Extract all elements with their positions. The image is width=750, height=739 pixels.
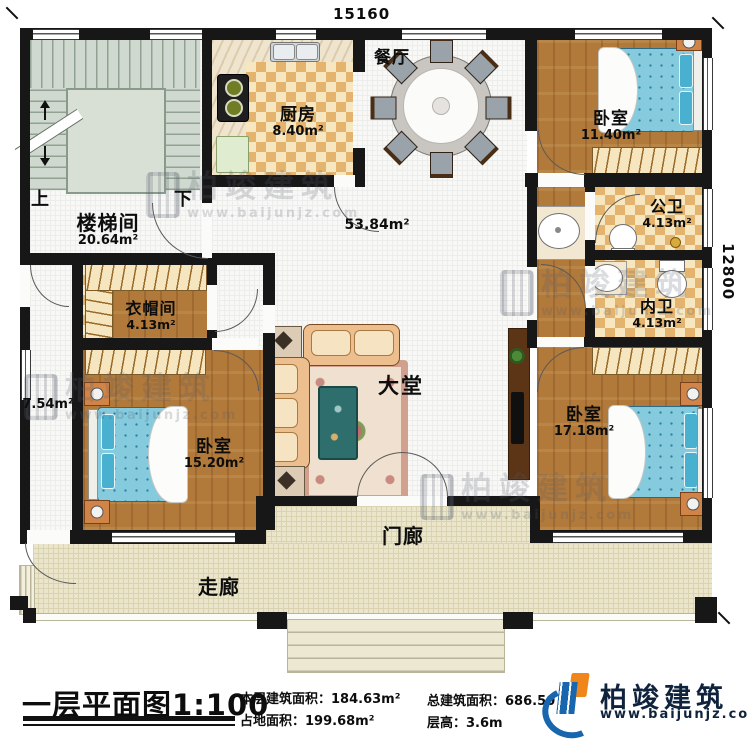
- door-gap-side-entry: [20, 265, 30, 307]
- floor-drain-icon: [670, 237, 681, 248]
- veranda-post: [503, 612, 533, 629]
- cloakroom-rack-left: [85, 288, 113, 340]
- label-public-bath: 公卫4.13m²: [642, 198, 691, 230]
- door-gap-kitchen: [334, 175, 355, 187]
- wall-bedroom-left-north: [80, 338, 212, 350]
- dimension-top: 15160: [333, 5, 390, 23]
- bed-bottom-right-pillow: [684, 413, 698, 449]
- label-staircase: 楼梯间20.64m²: [77, 212, 140, 249]
- label-kitchen: 厨房8.40m²: [272, 106, 323, 140]
- stat-footprint-area: 占地面积：199.68m²: [240, 710, 374, 729]
- dining-table-center: [432, 97, 450, 115]
- window: [553, 532, 683, 543]
- label-dining: 餐厅: [374, 49, 410, 68]
- dining-chair: [371, 97, 397, 120]
- stair-arrowhead-up: [40, 100, 50, 108]
- label-cloakroom: 衣帽间4.13m²: [125, 300, 176, 332]
- door-gap-vestibule: [263, 305, 275, 333]
- stair-arrowhead-down: [40, 158, 50, 166]
- bed-left-pillow: [101, 414, 115, 450]
- door-gap-bedroom-br: [537, 337, 584, 347]
- window: [703, 189, 713, 247]
- window: [402, 29, 486, 40]
- title-underline-thick: [23, 716, 235, 721]
- window: [33, 29, 79, 40]
- dining-chair: [430, 37, 453, 63]
- door-gap-hall-corridor: [527, 267, 537, 320]
- window: [112, 532, 235, 543]
- dimension-tick: [6, 7, 19, 20]
- window: [276, 29, 316, 40]
- veranda-post: [23, 608, 36, 623]
- kitchen-sink-bowl-left: [273, 44, 295, 60]
- entry-steps: [287, 619, 505, 673]
- wardrobe-bedroom-bottom-right: [592, 347, 704, 375]
- dining-chair: [430, 152, 453, 178]
- stair-direction-arrow-up: [44, 106, 46, 120]
- wall-bath-divider: [585, 250, 702, 260]
- window: [575, 29, 662, 40]
- basin-drain: [555, 227, 561, 233]
- door-gap-bedroom-left: [212, 338, 258, 350]
- wall-kitchen-south: [212, 175, 334, 187]
- stair-flight-right: [162, 88, 200, 190]
- door-gap-main-entry: [357, 496, 447, 506]
- veranda-post: [257, 612, 287, 629]
- wall-cloakroom-north: [20, 253, 275, 265]
- bed-bottom-right-pillow: [684, 452, 698, 488]
- bed-left-blanket: [148, 406, 188, 503]
- inner-bath-sink: [591, 264, 623, 292]
- stat-floor-area: 本层建筑面积：184.63m²: [240, 688, 400, 707]
- toilet-inner-bowl: [657, 270, 687, 298]
- stair-landing: [66, 88, 166, 194]
- veranda-post: [695, 597, 717, 623]
- label-stair-up: 上: [31, 190, 49, 210]
- wall-bedroom-left-east: [263, 345, 275, 530]
- floor-plan: 柏竣建筑 www.baijunjz.com 柏竣建筑 www.baijunjz.…: [0, 0, 750, 739]
- brand-url: www.baijunjz.com: [600, 707, 750, 722]
- floor-veranda: [33, 543, 712, 615]
- label-side-hall-area: 7.54m²: [22, 398, 73, 413]
- stair-flight-top: [30, 40, 200, 88]
- window: [703, 58, 713, 130]
- label-bedroom-top-right: 卧室11.40m²: [581, 110, 641, 144]
- bed-left-headboard: [88, 409, 98, 500]
- door-gap-bedroom-tr: [538, 173, 584, 187]
- kitchen-fridge: [216, 136, 249, 173]
- dining-chair: [486, 97, 512, 120]
- label-porch: 门廊: [382, 525, 424, 547]
- brand-logo-icon: [540, 672, 594, 730]
- window: [150, 29, 202, 40]
- bed-top-right-pillow: [679, 54, 693, 88]
- label-hall: 大堂: [378, 375, 424, 399]
- label-bedroom-bottom-right: 卧室17.18m²: [554, 406, 614, 440]
- plant-icon: [509, 348, 525, 364]
- window: [703, 268, 713, 330]
- door-gap-corridor-south: [27, 530, 70, 544]
- wall-porch-stub-right: [530, 496, 540, 543]
- label-bedroom-left: 卧室15.20m²: [184, 438, 244, 472]
- dimension-right: 12800: [719, 243, 737, 300]
- title-underline-thin: [23, 724, 235, 726]
- cloakroom-rack-top: [85, 263, 207, 291]
- stat-floor-height: 层高：3.6m: [427, 712, 503, 731]
- door-gap-inner-bath: [585, 266, 595, 308]
- wall-kitchen-east-upper: [353, 32, 365, 72]
- label-veranda: 走廊: [198, 576, 240, 598]
- wardrobe-bedroom-top-right: [592, 147, 704, 175]
- wall-bedroom-tr-west: [525, 28, 537, 131]
- window: [703, 408, 713, 498]
- nightstand: [84, 500, 110, 524]
- stat-total-area: 总建筑面积：686.50: [427, 690, 555, 709]
- bed-left-pillow: [101, 453, 115, 489]
- wall-corridor-west-upper: [527, 187, 537, 267]
- label-stair-down: 下: [174, 190, 192, 210]
- wall-porch-right: [447, 496, 540, 506]
- stove-burner-2: [225, 99, 243, 117]
- door-gap-public-bath: [585, 192, 595, 240]
- label-hall-area: 53.84m²: [344, 218, 409, 234]
- window: [21, 350, 31, 400]
- nightstand: [84, 382, 110, 406]
- dimension-tick: [712, 17, 725, 30]
- kitchen-sink-bowl-right: [296, 44, 318, 60]
- label-inner-bath: 内卫4.13m²: [632, 298, 681, 330]
- coffee-table: [318, 386, 358, 460]
- sofa-top: [303, 324, 400, 366]
- bed-top-right-pillow: [679, 91, 693, 125]
- dimension-tick: [718, 612, 731, 625]
- tv: [511, 392, 524, 444]
- stove-burner-1: [225, 79, 243, 97]
- wardrobe-bedroom-left: [85, 349, 206, 375]
